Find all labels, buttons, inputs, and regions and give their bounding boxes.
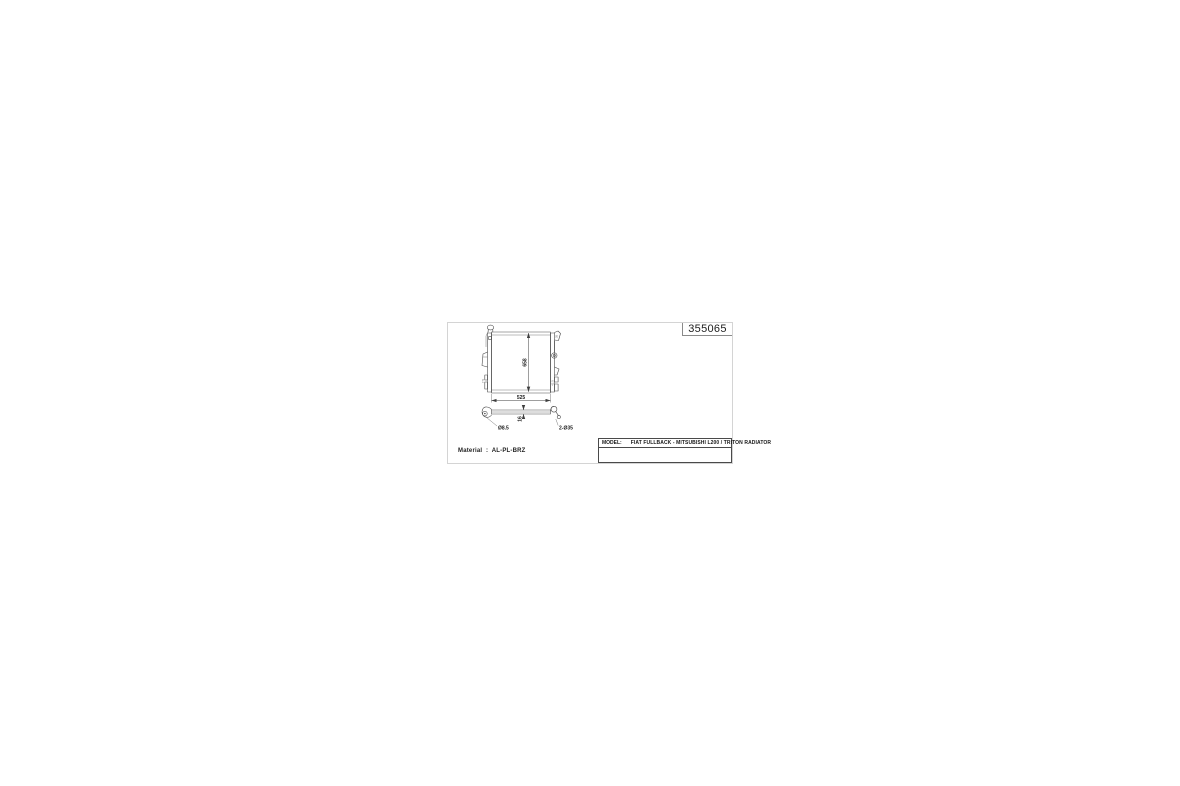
title-block: MODEL: FIAT FULLBACK - MITSUBISHI L200 /…	[598, 438, 732, 463]
dim-pipes: 2-Ø35	[556, 419, 573, 432]
model-value: FIAT FULLBACK - MITSUBISHI L200 / TRITON…	[631, 440, 771, 446]
model-label: MODEL:	[599, 440, 622, 446]
dim-core-height: 658	[523, 333, 529, 392]
dim-drain-hole-label: Ø8.5	[498, 426, 509, 432]
dim-drain-hole: Ø8.5	[487, 418, 510, 432]
left-bracket	[482, 352, 488, 367]
left-tank	[488, 333, 492, 392]
front-view: 7.5 35 42.5 658	[481, 325, 561, 402]
core-edge	[492, 410, 551, 414]
bracket-note-bottom-right: 42.5	[550, 380, 554, 386]
drawing-sheet: 355065	[447, 322, 733, 464]
model-row: MODEL: FIAT FULLBACK - MITSUBISHI L200 /…	[599, 439, 731, 448]
filler-neck	[486, 325, 494, 347]
radiator-core	[492, 332, 551, 393]
bracket-note-bottom-left: 7.5	[481, 379, 485, 384]
left-end-fitting	[482, 407, 491, 417]
bottom-view: Ø8.5 2-Ø35 16	[482, 406, 573, 431]
bracket-note-top-right: 35	[555, 335, 559, 339]
dim-core-height-label: 658	[523, 358, 529, 367]
right-top-bracket: 35	[555, 331, 561, 341]
dim-core-thickness-label: 16	[518, 416, 524, 422]
dim-core-width: 525	[492, 394, 551, 403]
left-lower-fittings: 7.5	[481, 375, 488, 389]
canvas: { "sheet": { "part_number": "355065", "m…	[0, 0, 1180, 786]
dim-pipes-label: 2-Ø35	[559, 426, 573, 432]
dim-core-width-label: 525	[517, 395, 526, 401]
right-end-fitting	[551, 406, 561, 418]
material-note: Material : AL-PL-BRZ	[458, 448, 526, 454]
